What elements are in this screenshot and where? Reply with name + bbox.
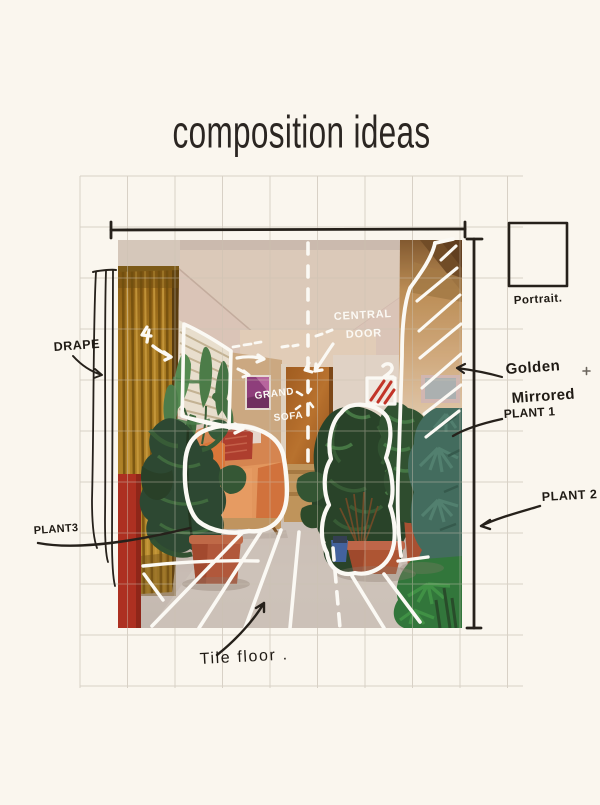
svg-text:PLANT 1: PLANT 1 — [503, 404, 555, 421]
svg-text:composition ideas: composition ideas — [173, 108, 431, 158]
svg-text:PLANT 2: PLANT 2 — [541, 487, 597, 504]
svg-text:DOOR: DOOR — [346, 327, 383, 341]
svg-text:Portrait.: Portrait. — [514, 292, 563, 307]
